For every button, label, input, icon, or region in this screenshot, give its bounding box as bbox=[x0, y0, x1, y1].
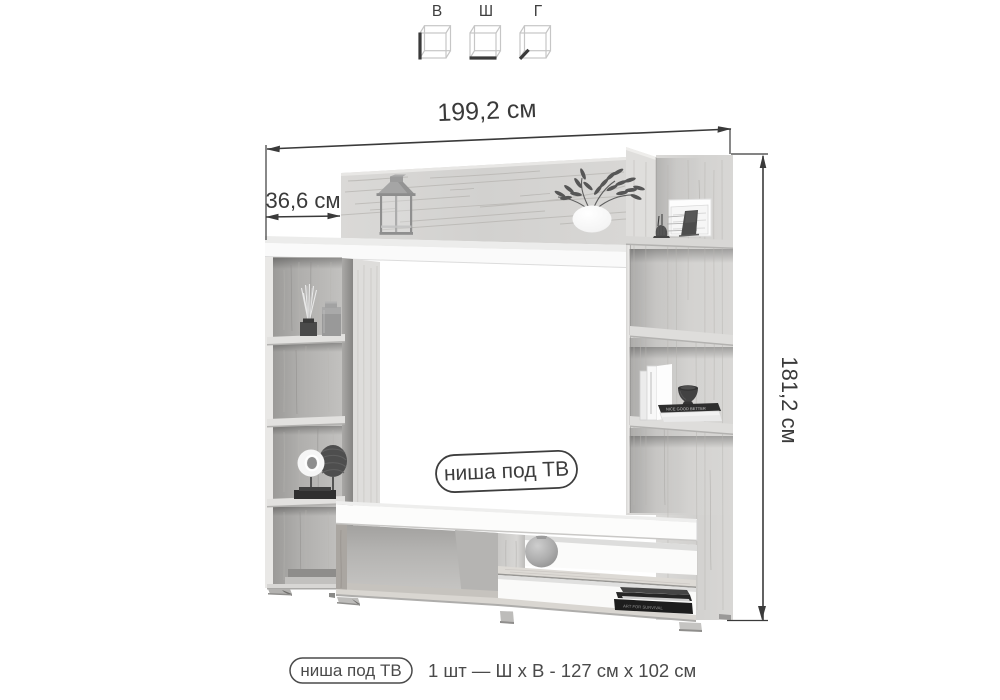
svg-text:Г: Г bbox=[534, 3, 543, 20]
svg-text:36,6 см: 36,6 см bbox=[265, 188, 340, 213]
svg-text:1 шт — Ш х В - 127 см х 102 см: 1 шт — Ш х В - 127 см х 102 см bbox=[428, 660, 696, 681]
svg-text:199,2 см: 199,2 см bbox=[437, 95, 537, 127]
svg-text:ниша под ТВ: ниша под ТВ bbox=[300, 661, 401, 680]
svg-text:В: В bbox=[432, 3, 442, 20]
svg-text:NICE GOOD BETTER: NICE GOOD BETTER bbox=[666, 406, 706, 412]
svg-text:181,2 см: 181,2 см bbox=[777, 356, 802, 443]
svg-text:Ш: Ш bbox=[479, 3, 493, 20]
